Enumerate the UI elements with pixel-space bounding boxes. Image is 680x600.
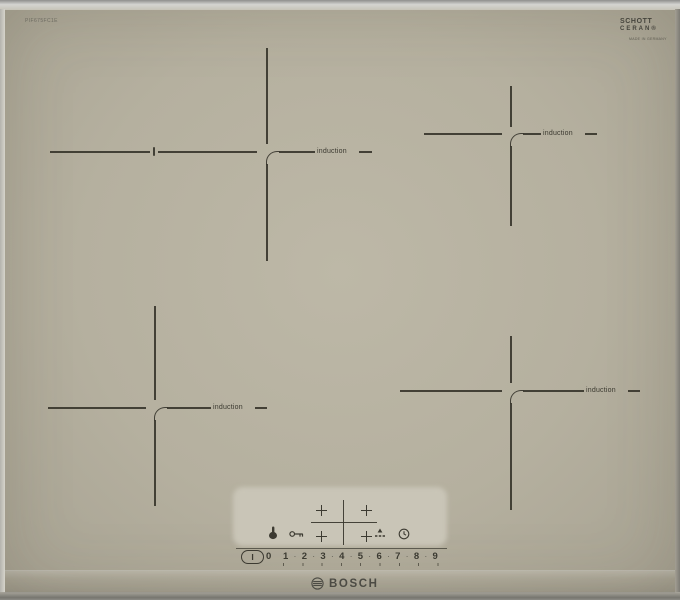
level-strip-line xyxy=(236,548,447,549)
zone-line xyxy=(266,48,268,144)
zone-select-rear-right-key[interactable] xyxy=(361,505,372,516)
glass-left-bevel xyxy=(0,9,5,592)
zone-line xyxy=(510,336,512,383)
ceran-line: CERAN® xyxy=(620,26,667,33)
induction-label: induction xyxy=(543,130,573,138)
power-level-2[interactable]: 2 xyxy=(302,551,307,562)
zone-line xyxy=(158,151,257,153)
glass-bottom-edge xyxy=(0,592,680,600)
induction-label: induction xyxy=(586,387,616,395)
level-separator: · xyxy=(387,552,390,562)
zone-select-front-left-key[interactable] xyxy=(316,531,327,542)
zone-line xyxy=(585,133,597,135)
level-tick-marks xyxy=(283,563,439,566)
zone-line xyxy=(154,306,156,400)
kitchen-timer-clock-icon[interactable] xyxy=(398,528,410,540)
schott-ceran-logo: SCHOTT CERAN® MADE IN GERMANY xyxy=(620,18,667,41)
zone-line xyxy=(48,407,146,409)
zone-line xyxy=(359,151,372,153)
power-level-0[interactable]: 0 xyxy=(266,551,271,562)
zone-select-rear-left-key[interactable] xyxy=(316,505,327,516)
schott-line: SCHOTT xyxy=(620,18,667,26)
zone-line xyxy=(255,407,267,409)
zone-line xyxy=(50,151,150,153)
level-separator: · xyxy=(424,552,427,562)
level-separator: · xyxy=(294,552,297,562)
level-separator: · xyxy=(406,552,409,562)
power-level-4[interactable]: 4 xyxy=(339,551,344,562)
bosch-wordmark: BOSCH xyxy=(329,578,379,590)
level-separator: · xyxy=(331,552,334,562)
schott-sub-text: MADE IN GERMANY xyxy=(629,37,667,41)
model-number: PIF675FC1E xyxy=(25,18,58,24)
power-level-5[interactable]: 5 xyxy=(358,551,363,562)
selector-line xyxy=(311,522,377,523)
power-level-9[interactable]: 9 xyxy=(433,551,438,562)
cooktop-photo: PIF675FC1E SCHOTT CERAN® MADE IN GERMANY… xyxy=(0,0,680,600)
level-separator: · xyxy=(312,552,315,562)
zone-line xyxy=(523,390,584,392)
zone-center-tick xyxy=(153,147,156,156)
power-level-6[interactable]: 6 xyxy=(376,551,381,562)
control-panel-background xyxy=(233,487,447,546)
zone-line xyxy=(510,146,512,226)
power-on-off-key[interactable]: I xyxy=(241,550,264,564)
zone-line xyxy=(628,390,640,392)
zone-select-front-right-key[interactable] xyxy=(361,531,372,542)
induction-label: induction xyxy=(317,148,347,156)
zone-line xyxy=(167,407,211,409)
zone-line xyxy=(510,403,512,510)
zone-line xyxy=(424,133,502,135)
zone-line xyxy=(523,133,541,135)
power-level-8[interactable]: 8 xyxy=(414,551,419,562)
power-level-1[interactable]: 1 xyxy=(283,551,288,562)
zone-line xyxy=(279,151,315,153)
zone-line xyxy=(266,164,268,261)
cleaning-pause-hand-icon[interactable] xyxy=(267,526,279,540)
power-level-list[interactable]: 1·2·3·4·5·6·7·8·9 xyxy=(283,551,438,562)
power-symbol: I xyxy=(251,552,253,562)
bosch-symbol-icon xyxy=(311,577,324,590)
glass-right-bevel xyxy=(675,9,680,592)
zone-line xyxy=(510,86,512,127)
power-level-3[interactable]: 3 xyxy=(320,551,325,562)
glass-top-bevel xyxy=(0,0,680,10)
zone-line xyxy=(400,390,502,392)
level-separator: · xyxy=(350,552,353,562)
power-level-7[interactable]: 7 xyxy=(395,551,400,562)
child-lock-key-icon[interactable] xyxy=(289,530,305,539)
induction-label: induction xyxy=(213,404,243,412)
bosch-logo: BOSCH xyxy=(311,577,379,590)
timer-reset-icon[interactable] xyxy=(374,527,386,539)
zone-line xyxy=(154,420,156,506)
level-separator: · xyxy=(368,552,371,562)
